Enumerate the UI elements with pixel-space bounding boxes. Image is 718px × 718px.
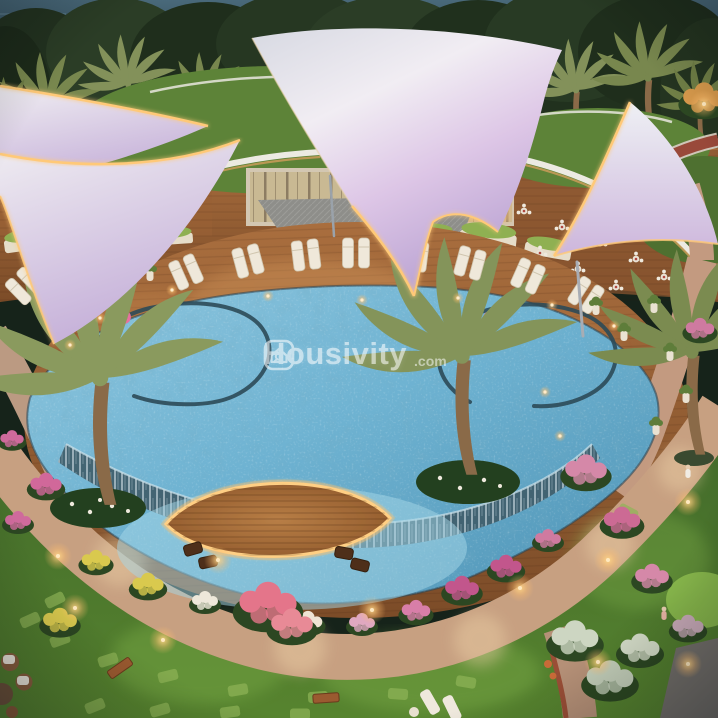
resort-aerial-rendering: Housivity .com [0,0,718,718]
scene-canvas [0,0,718,718]
vignette-overlay [0,0,718,718]
